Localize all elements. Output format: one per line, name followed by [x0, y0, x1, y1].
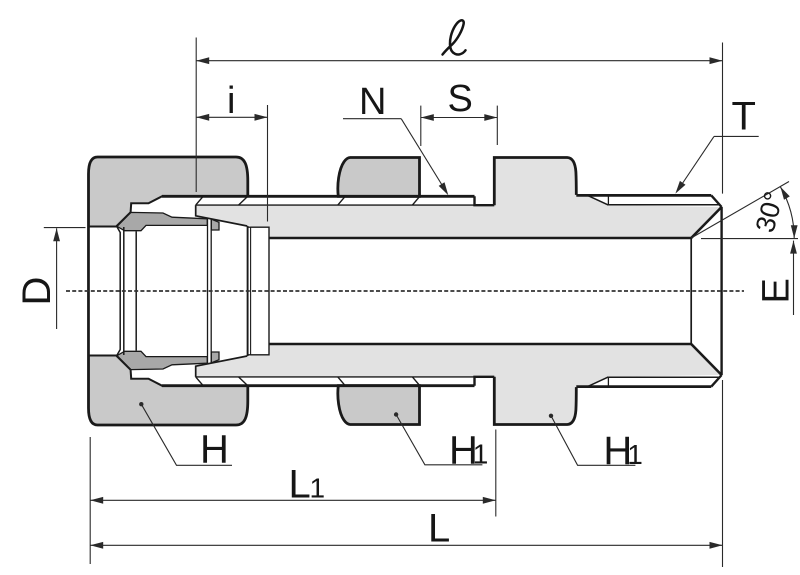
svg-text:1: 1 [627, 439, 643, 470]
svg-text:E: E [756, 278, 798, 303]
svg-text:T: T [732, 95, 756, 139]
svg-text:i: i [227, 80, 235, 122]
svg-text:S: S [448, 78, 473, 120]
svg-text:D: D [15, 277, 59, 306]
svg-text:L: L [428, 507, 450, 551]
svg-text:1: 1 [310, 473, 326, 504]
svg-text:H: H [200, 428, 229, 472]
svg-text:N: N [359, 81, 386, 123]
svg-text:L: L [289, 463, 311, 507]
svg-text:1: 1 [473, 438, 489, 469]
svg-text:30°: 30° [750, 188, 790, 235]
